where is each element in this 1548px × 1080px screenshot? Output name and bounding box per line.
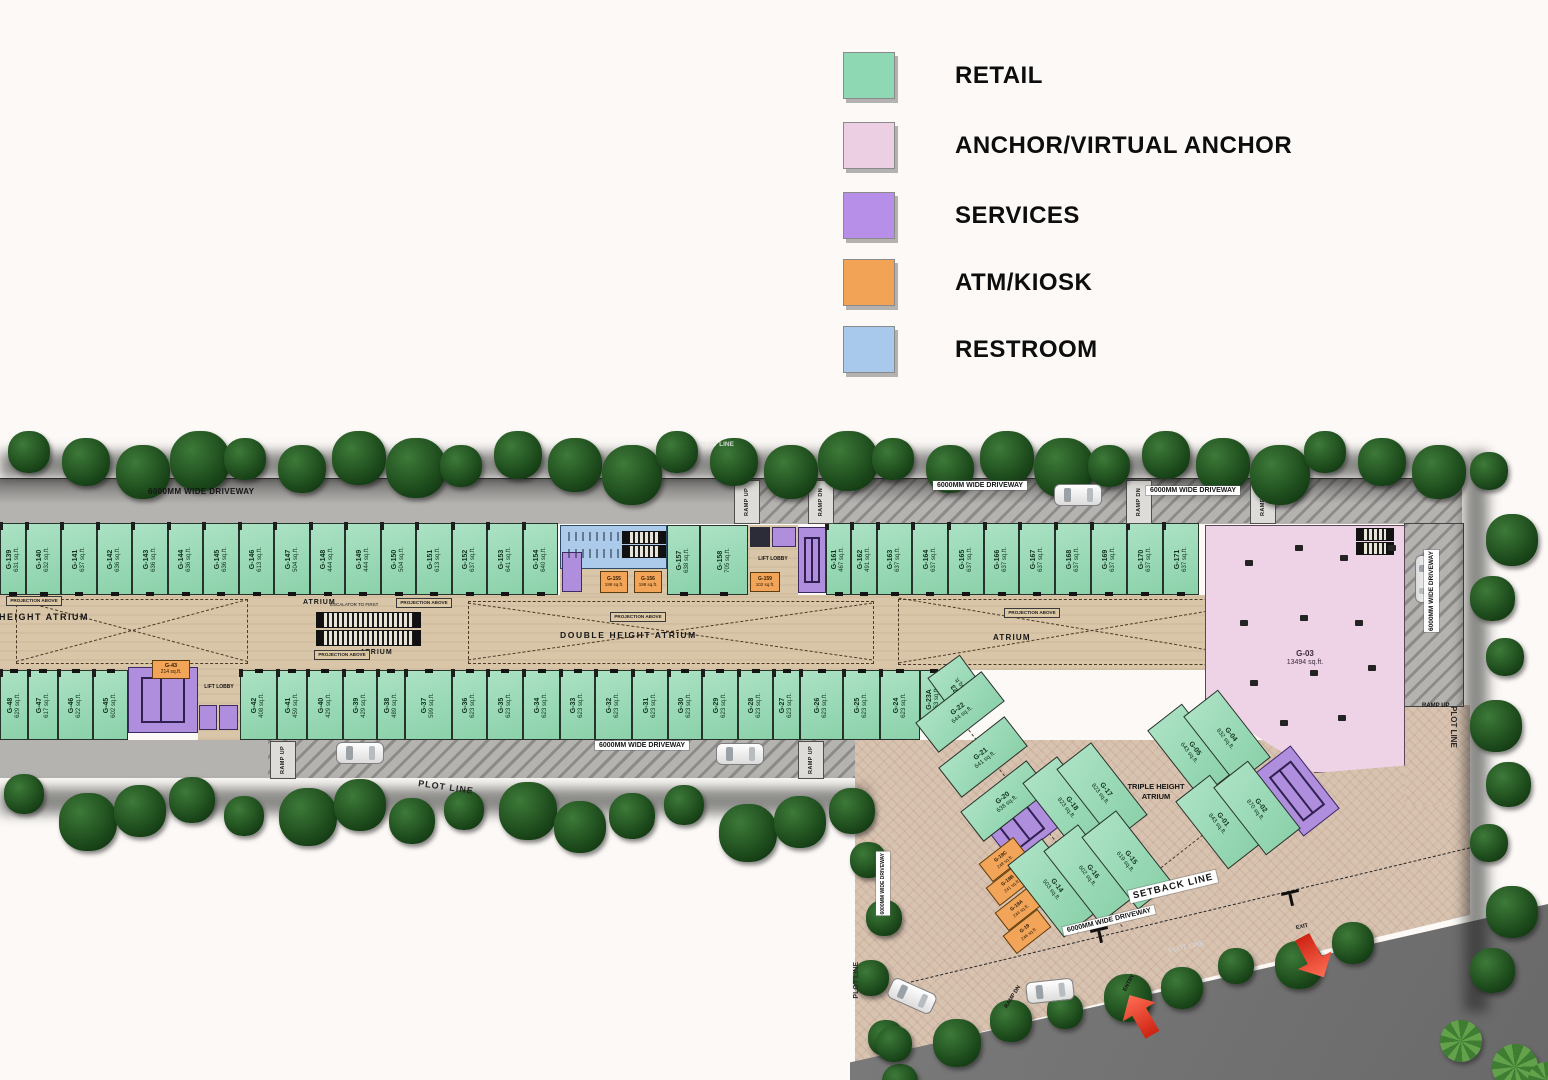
unit-G-47: G-47617 sq.ft.	[28, 670, 58, 740]
unit-G-148: G-148444 sq.ft.	[310, 523, 345, 595]
double-atrium-label: DOUBLE HEIGHT ATRIUM	[560, 630, 697, 640]
legend-label: ATM/KIOSK	[955, 269, 1092, 297]
unit-id: G-36	[462, 693, 470, 718]
unit-id: G-35	[498, 693, 506, 718]
unit-area: 623 sq.ft.	[721, 693, 728, 718]
tree	[764, 445, 818, 499]
column-mark	[1388, 545, 1396, 551]
triple-atrium-label-clipped: TRIPLE HEIGHT ATRIUM	[0, 612, 89, 622]
unit-G-27: G-27623 sq.ft.	[773, 670, 800, 740]
tree	[499, 782, 557, 840]
tree	[980, 431, 1034, 485]
driveway-label: 6000MM WIDE DRIVEWAY	[595, 741, 689, 750]
column-mark	[1355, 620, 1363, 626]
unit-id: G-31	[643, 693, 651, 718]
unit-id: G-41	[285, 693, 293, 718]
unit-G-35: G-35623 sq.ft.	[487, 670, 523, 740]
tree	[1486, 886, 1538, 938]
unit-id: G-24	[893, 693, 901, 718]
ramp-up: RAMP UP	[734, 480, 760, 524]
unit-G-25: G-25623 sq.ft.	[843, 670, 880, 740]
unit-G-38: G-38489 sq.ft.	[377, 670, 405, 740]
unit-id: G-167	[1030, 547, 1038, 572]
unit-id: G-149	[356, 547, 364, 572]
unit-id: G-42	[251, 693, 259, 718]
tree	[990, 1000, 1032, 1042]
unit-id: G-166	[994, 547, 1002, 572]
column-mark	[1245, 560, 1253, 566]
unit-id: G-164	[923, 547, 931, 572]
unit-area: 199 sq.ft.	[605, 582, 624, 587]
ramp-up-label: RAMP UP	[1422, 703, 1450, 709]
driveway-label: 6000MM WIDE DRIVEWAY	[933, 481, 1027, 490]
legend-label: RETAIL	[955, 62, 1043, 90]
unit-G-170: G-170637 sq.ft.	[1127, 523, 1163, 595]
tree	[1470, 452, 1508, 490]
unit-id: G-141	[72, 547, 80, 572]
tree	[1470, 576, 1515, 621]
unit-area: 623 sq.ft.	[686, 693, 693, 718]
plot-line-label: PLOT LINE	[700, 441, 734, 448]
unit-G-36: G-36623 sq.ft.	[452, 670, 487, 740]
tree	[818, 431, 878, 491]
column-mark	[1340, 555, 1348, 561]
legend-label: SERVICES	[955, 202, 1080, 230]
atrium-label: ATRIUM	[993, 633, 1031, 642]
unit-area: 623 sq.ft.	[578, 693, 585, 718]
palm-tree	[1440, 1020, 1482, 1062]
unit-area: 623 sq.ft.	[862, 693, 869, 718]
lift-car	[219, 705, 238, 730]
tree	[876, 1026, 912, 1062]
unit-area: 623 sq.ft.	[756, 693, 763, 718]
projection-label: PROJECTION ABOVE	[610, 612, 666, 622]
tree	[1218, 948, 1254, 984]
tree	[386, 438, 446, 498]
legend-row-atm: ATM/KIOSK	[843, 259, 1092, 306]
unit-G-159: G-159102 sq.ft.	[750, 572, 780, 592]
legend-row-anchor: ANCHOR/VIRTUAL ANCHOR	[843, 122, 1292, 169]
unit-area: 636 sq.ft.	[222, 547, 229, 572]
unit-G-156: G-156198 sq.ft.	[634, 571, 662, 593]
unit-area: 637 sq.ft.	[1002, 547, 1009, 572]
unit-area: 408 sq.ft.	[259, 693, 266, 718]
unit-area: 444 sq.ft.	[364, 547, 371, 572]
tree	[1142, 431, 1190, 479]
unit-id: G-154	[533, 547, 541, 572]
unit-G-33: G-33623 sq.ft.	[560, 670, 595, 740]
unit-G-41: G-41459 sq.ft.	[277, 670, 307, 740]
tree	[62, 438, 110, 486]
tree	[224, 796, 264, 836]
floor-plan-page: RETAIL ANCHOR/VIRTUAL ANCHOR SERVICES AT…	[0, 0, 1548, 1080]
tree	[444, 790, 484, 830]
lift-lobby-label: LIFT LOBBY	[196, 684, 242, 690]
unit-id: G-157	[676, 548, 684, 573]
tree	[609, 793, 655, 839]
unit-G-158: G-158705 sq.ft.	[700, 525, 748, 595]
driveway-label: 6000MM WIDE DRIVEWAY	[1146, 486, 1240, 495]
unit-area: 637 sq.ft.	[967, 547, 974, 572]
unit-id: G-161	[831, 547, 839, 572]
unit-area: 705 sq.ft.	[725, 548, 732, 573]
unit-id: G-151	[427, 547, 435, 572]
unit-G-167: G-167637 sq.ft.	[1019, 523, 1055, 595]
driveway-label-vertical: 6000MM WIDE DRIVEWAY	[876, 852, 890, 916]
unit-id: G-163	[887, 547, 895, 572]
unit-area: 637 sq.ft.	[1182, 547, 1189, 572]
projection-label: PROJECTION ABOVE	[6, 596, 62, 606]
tree	[494, 431, 542, 479]
ramp-up: RAMP UP	[798, 741, 824, 779]
unit-area: 636 sq.ft.	[151, 547, 158, 572]
unit-area: 632 sq.ft.	[44, 547, 51, 572]
unit-G-37: G-37599 sq.ft.	[405, 670, 452, 740]
unit-area: 623 sq.ft.	[787, 693, 794, 718]
unit-id: G-37	[421, 693, 429, 718]
unit-G-166: G-166637 sq.ft.	[984, 523, 1019, 595]
unit-area: 617 sq.ft.	[44, 693, 51, 718]
unit-G-164: G-164637 sq.ft.	[912, 523, 948, 595]
tree	[1304, 431, 1346, 473]
legend-label: ANCHOR/VIRTUAL ANCHOR	[955, 132, 1292, 160]
unit-id: G-39	[353, 693, 361, 718]
tree	[664, 785, 704, 825]
tree	[1486, 514, 1538, 566]
unit-id: G-153	[498, 547, 506, 572]
unit-G-28: G-28623 sq.ft.	[738, 670, 773, 740]
car	[716, 743, 764, 765]
driveway-label: 6000MM WIDE DRIVEWAY	[148, 487, 254, 496]
unit-id: G-152	[462, 547, 470, 572]
tree	[774, 796, 826, 848]
unit-id: G-32	[606, 693, 614, 718]
unit-id: G-40	[318, 693, 326, 718]
tree	[334, 779, 386, 831]
tree	[1250, 445, 1310, 505]
legend-row-services: SERVICES	[843, 192, 1080, 239]
unit-area: 636 sq.ft.	[115, 547, 122, 572]
column-mark	[1280, 720, 1288, 726]
stair-icon	[622, 545, 666, 558]
tree	[4, 774, 44, 814]
unit-G-163: G-163637 sq.ft.	[877, 523, 912, 595]
unit-G-152: G-152637 sq.ft.	[452, 523, 487, 595]
unit-G-42: G-42408 sq.ft.	[240, 670, 277, 740]
unit-area: 198 sq.ft.	[639, 582, 658, 587]
escalator-icon	[316, 612, 421, 628]
unit-id: G-46	[68, 693, 76, 718]
unit-id: G-27	[779, 693, 787, 718]
tree	[169, 777, 215, 823]
triple-atrium-label: TRIPLE HEIGHT ATRIUM	[1124, 782, 1188, 802]
unit-id: G-170	[1138, 547, 1146, 572]
unit-G-29: G-29623 sq.ft.	[702, 670, 738, 740]
tree	[1470, 824, 1508, 862]
unit-area: 613 sq.ft.	[257, 547, 264, 572]
unit-area: 602 sq.ft.	[111, 693, 118, 718]
column-mark	[1250, 680, 1258, 686]
tree	[440, 445, 482, 487]
unit-area: 636 sq.ft.	[186, 547, 193, 572]
unit-id: G-171	[1174, 547, 1182, 572]
tree	[114, 785, 166, 837]
unit-G-157: G-157638 sq.ft.	[667, 525, 700, 595]
tree	[1196, 438, 1250, 492]
unit-area: 429 sq.ft.	[361, 693, 368, 718]
unit-area: 623 sq.ft.	[614, 693, 621, 718]
plot-line-label: PLOT LINE	[1449, 706, 1458, 748]
unit-G-39: G-39429 sq.ft.	[343, 670, 377, 740]
atm-swatch	[843, 259, 895, 306]
tree	[1332, 922, 1374, 964]
tree	[1486, 638, 1524, 676]
unit-id: G-150	[391, 547, 399, 572]
tree	[1412, 445, 1466, 499]
unit-id: G-28	[748, 693, 756, 718]
car	[336, 742, 384, 764]
unit-id: G-142	[107, 547, 115, 572]
unit-id: G-148	[320, 547, 328, 572]
unit-area: 637 sq.ft.	[1074, 547, 1081, 572]
unit-G-141: G-141637 sq.ft.	[61, 523, 97, 595]
lift-car	[199, 705, 217, 730]
unit-area: 629 sq.ft.	[15, 693, 22, 718]
unit-area: 489 sq.ft.	[392, 693, 399, 718]
tree	[872, 438, 914, 480]
tree	[656, 431, 698, 473]
unit-id: G-145	[214, 547, 222, 572]
unit-G-169: G-169637 sq.ft.	[1091, 523, 1127, 595]
unit-id: G-146	[249, 547, 257, 572]
tree	[1486, 762, 1531, 807]
unit-G-150: G-150504 sq.ft.	[381, 523, 416, 595]
unit-id: G-38	[384, 693, 392, 718]
tree	[224, 438, 266, 480]
unit-id: G-140	[36, 547, 44, 572]
unit-G-147: G-147504 sq.ft.	[274, 523, 310, 595]
unit-id: G-147	[285, 547, 293, 572]
unit-id: G-162	[857, 547, 865, 572]
unit-G-162: G-162491 sq.ft.	[851, 523, 877, 595]
unit-G-31: G-31623 sq.ft.	[632, 670, 668, 740]
unit-id: G-168	[1066, 547, 1074, 572]
unit-G-142: G-142636 sq.ft.	[97, 523, 132, 595]
unit-id: G-165	[959, 547, 967, 572]
unit-id: G-143	[143, 547, 151, 572]
plot-line-label: PLOT LINE	[853, 962, 860, 999]
retail-swatch	[843, 52, 895, 99]
tree	[1161, 967, 1203, 1009]
column-mark	[1338, 715, 1346, 721]
unit-area: 641 sq.ft.	[506, 547, 513, 572]
unit-area: 599 sq.ft.	[429, 693, 436, 718]
unit-area: 637 sq.ft.	[1110, 547, 1117, 572]
projection-label: PROJECTION ABOVE	[314, 650, 370, 660]
unit-G-151: G-151613 sq.ft.	[416, 523, 452, 595]
unit-area: 622 sq.ft.	[76, 693, 83, 718]
unit-area: 631 sq.ft.	[14, 547, 21, 572]
tree	[1470, 948, 1515, 993]
unit-G-153: G-153641 sq.ft.	[487, 523, 523, 595]
tree	[1358, 438, 1406, 486]
unit-G-146: G-146613 sq.ft.	[239, 523, 274, 595]
plaza-right	[1404, 705, 1470, 805]
unit-G-48: G-48629 sq.ft.	[0, 670, 28, 740]
unit-area: 429 sq.ft.	[326, 693, 333, 718]
unit-id: G-26	[814, 693, 822, 718]
unit-G-45: G-45602 sq.ft.	[93, 670, 128, 740]
tree	[1470, 700, 1522, 752]
unit-area: 623 sq.ft.	[822, 693, 829, 718]
legend-row-restroom: RESTROOM	[843, 326, 1098, 373]
unit-area: 637 sq.ft.	[80, 547, 87, 572]
unit-G-24: G-24623 sq.ft.	[880, 670, 920, 740]
stair-icon	[622, 531, 666, 544]
unit-area: 491 sq.ft.	[865, 547, 872, 572]
unit-id: G-45	[103, 693, 111, 718]
unit-area: 504 sq.ft.	[293, 547, 300, 572]
column-mark	[1300, 615, 1308, 621]
services-swatch	[843, 192, 895, 239]
unit-area: 637 sq.ft.	[470, 547, 477, 572]
unit-G-161: G-161467 sq.ft.	[826, 523, 851, 595]
anchor-swatch	[843, 122, 895, 169]
unit-area: 637 sq.ft.	[1146, 547, 1153, 572]
unit-G-168: G-168637 sq.ft.	[1055, 523, 1091, 595]
unit-id: G-34	[534, 693, 542, 718]
column-mark	[1310, 670, 1318, 676]
unit-id: G-33	[570, 693, 578, 718]
column-mark	[1295, 545, 1303, 551]
stair-block-top	[798, 527, 826, 593]
tree	[719, 804, 777, 862]
lift-shaft	[750, 527, 770, 547]
escalator-label: ESCALATOR TO FIRST	[330, 602, 378, 607]
unit-area: 623 sq.ft.	[901, 693, 908, 718]
unit-id: G-169	[1102, 547, 1110, 572]
unit-G-145: G-145636 sq.ft.	[203, 523, 239, 595]
unit-area: 637 sq.ft.	[895, 547, 902, 572]
unit-area: 638 sq.ft.	[684, 548, 691, 573]
tree	[279, 788, 337, 846]
unit-area: 613 sq.ft.	[435, 547, 442, 572]
tree	[548, 438, 602, 492]
unit-G-34: G-34623 sq.ft.	[523, 670, 560, 740]
unit-G-154: G-154640 sq.ft.	[523, 523, 558, 595]
lift-lobby-label: LIFT LOBBY	[748, 556, 798, 562]
tree	[389, 798, 435, 844]
unit-area: 504 sq.ft.	[399, 547, 406, 572]
tree	[59, 793, 117, 851]
tree	[554, 801, 606, 853]
unit-G-140: G-140632 sq.ft.	[26, 523, 61, 595]
ramp-up: RAMP UP	[270, 741, 296, 779]
unit-area: 102 sq.ft.	[756, 582, 775, 587]
unit-G-149: G-149444 sq.ft.	[345, 523, 381, 595]
unit-id: G-139	[6, 547, 14, 572]
tree	[8, 431, 50, 473]
unit-id: G-158	[717, 548, 725, 573]
unit-area: 444 sq.ft.	[328, 547, 335, 572]
unit-id: G-25	[854, 693, 862, 718]
unit-G-143: G-143636 sq.ft.	[132, 523, 168, 595]
escalator-icon	[316, 630, 421, 646]
unit-id: G-29	[713, 693, 721, 718]
projection-label: PROJECTION ABOVE	[396, 598, 452, 608]
legend-label: RESTROOM	[955, 336, 1098, 364]
projection-label: PROJECTION ABOVE	[1004, 608, 1060, 618]
unit-G-144: G-144636 sq.ft.	[168, 523, 203, 595]
unit-area: 640 sq.ft.	[541, 547, 548, 572]
stair-icon	[1356, 528, 1394, 541]
driveway-label-vertical: 6000MM WIDE DRIVEWAY	[1424, 550, 1439, 632]
unit-G-32: G-32623 sq.ft.	[595, 670, 632, 740]
tree	[933, 1019, 981, 1067]
unit-area: 459 sq.ft.	[293, 693, 300, 718]
column-mark	[1240, 620, 1248, 626]
unit-area: 637 sq.ft.	[931, 547, 938, 572]
unit-area: 623 sq.ft.	[651, 693, 658, 718]
lift-car	[772, 527, 796, 547]
unit-area: 623 sq.ft.	[506, 693, 513, 718]
unit-id: G-47	[36, 693, 44, 718]
car	[1054, 484, 1102, 506]
escalator-core	[562, 552, 582, 592]
unit-G-30: G-30623 sq.ft.	[668, 670, 702, 740]
unit-G-139: G-139631 sq.ft.	[0, 523, 26, 595]
unit-G-40: G-40429 sq.ft.	[307, 670, 343, 740]
tree	[332, 431, 386, 485]
unit-G-171: G-171637 sq.ft.	[1163, 523, 1199, 595]
unit-area: 623 sq.ft.	[470, 693, 477, 718]
unit-G-26: G-26623 sq.ft.	[800, 670, 843, 740]
unit-G-43: G-43 214 sq.ft.	[152, 660, 190, 679]
restroom-swatch	[843, 326, 895, 373]
unit-area: 623 sq.ft.	[542, 693, 549, 718]
unit-area: 637 sq.ft.	[1038, 547, 1045, 572]
tree	[170, 431, 230, 491]
unit-id: G-144	[178, 547, 186, 572]
unit-id: G-48	[7, 693, 15, 718]
unit-id: G-30	[678, 693, 686, 718]
unit-G-165: G-165637 sq.ft.	[948, 523, 984, 595]
unit-area: 467 sq.ft.	[839, 547, 846, 572]
tree	[1088, 445, 1130, 487]
tree	[602, 445, 662, 505]
unit-G-46: G-46622 sq.ft.	[58, 670, 93, 740]
unit-G-155: G-155199 sq.ft.	[600, 571, 628, 593]
legend-row-retail: RETAIL	[843, 52, 1043, 99]
column-mark	[1368, 665, 1376, 671]
tree	[278, 445, 326, 493]
tree	[829, 788, 875, 834]
